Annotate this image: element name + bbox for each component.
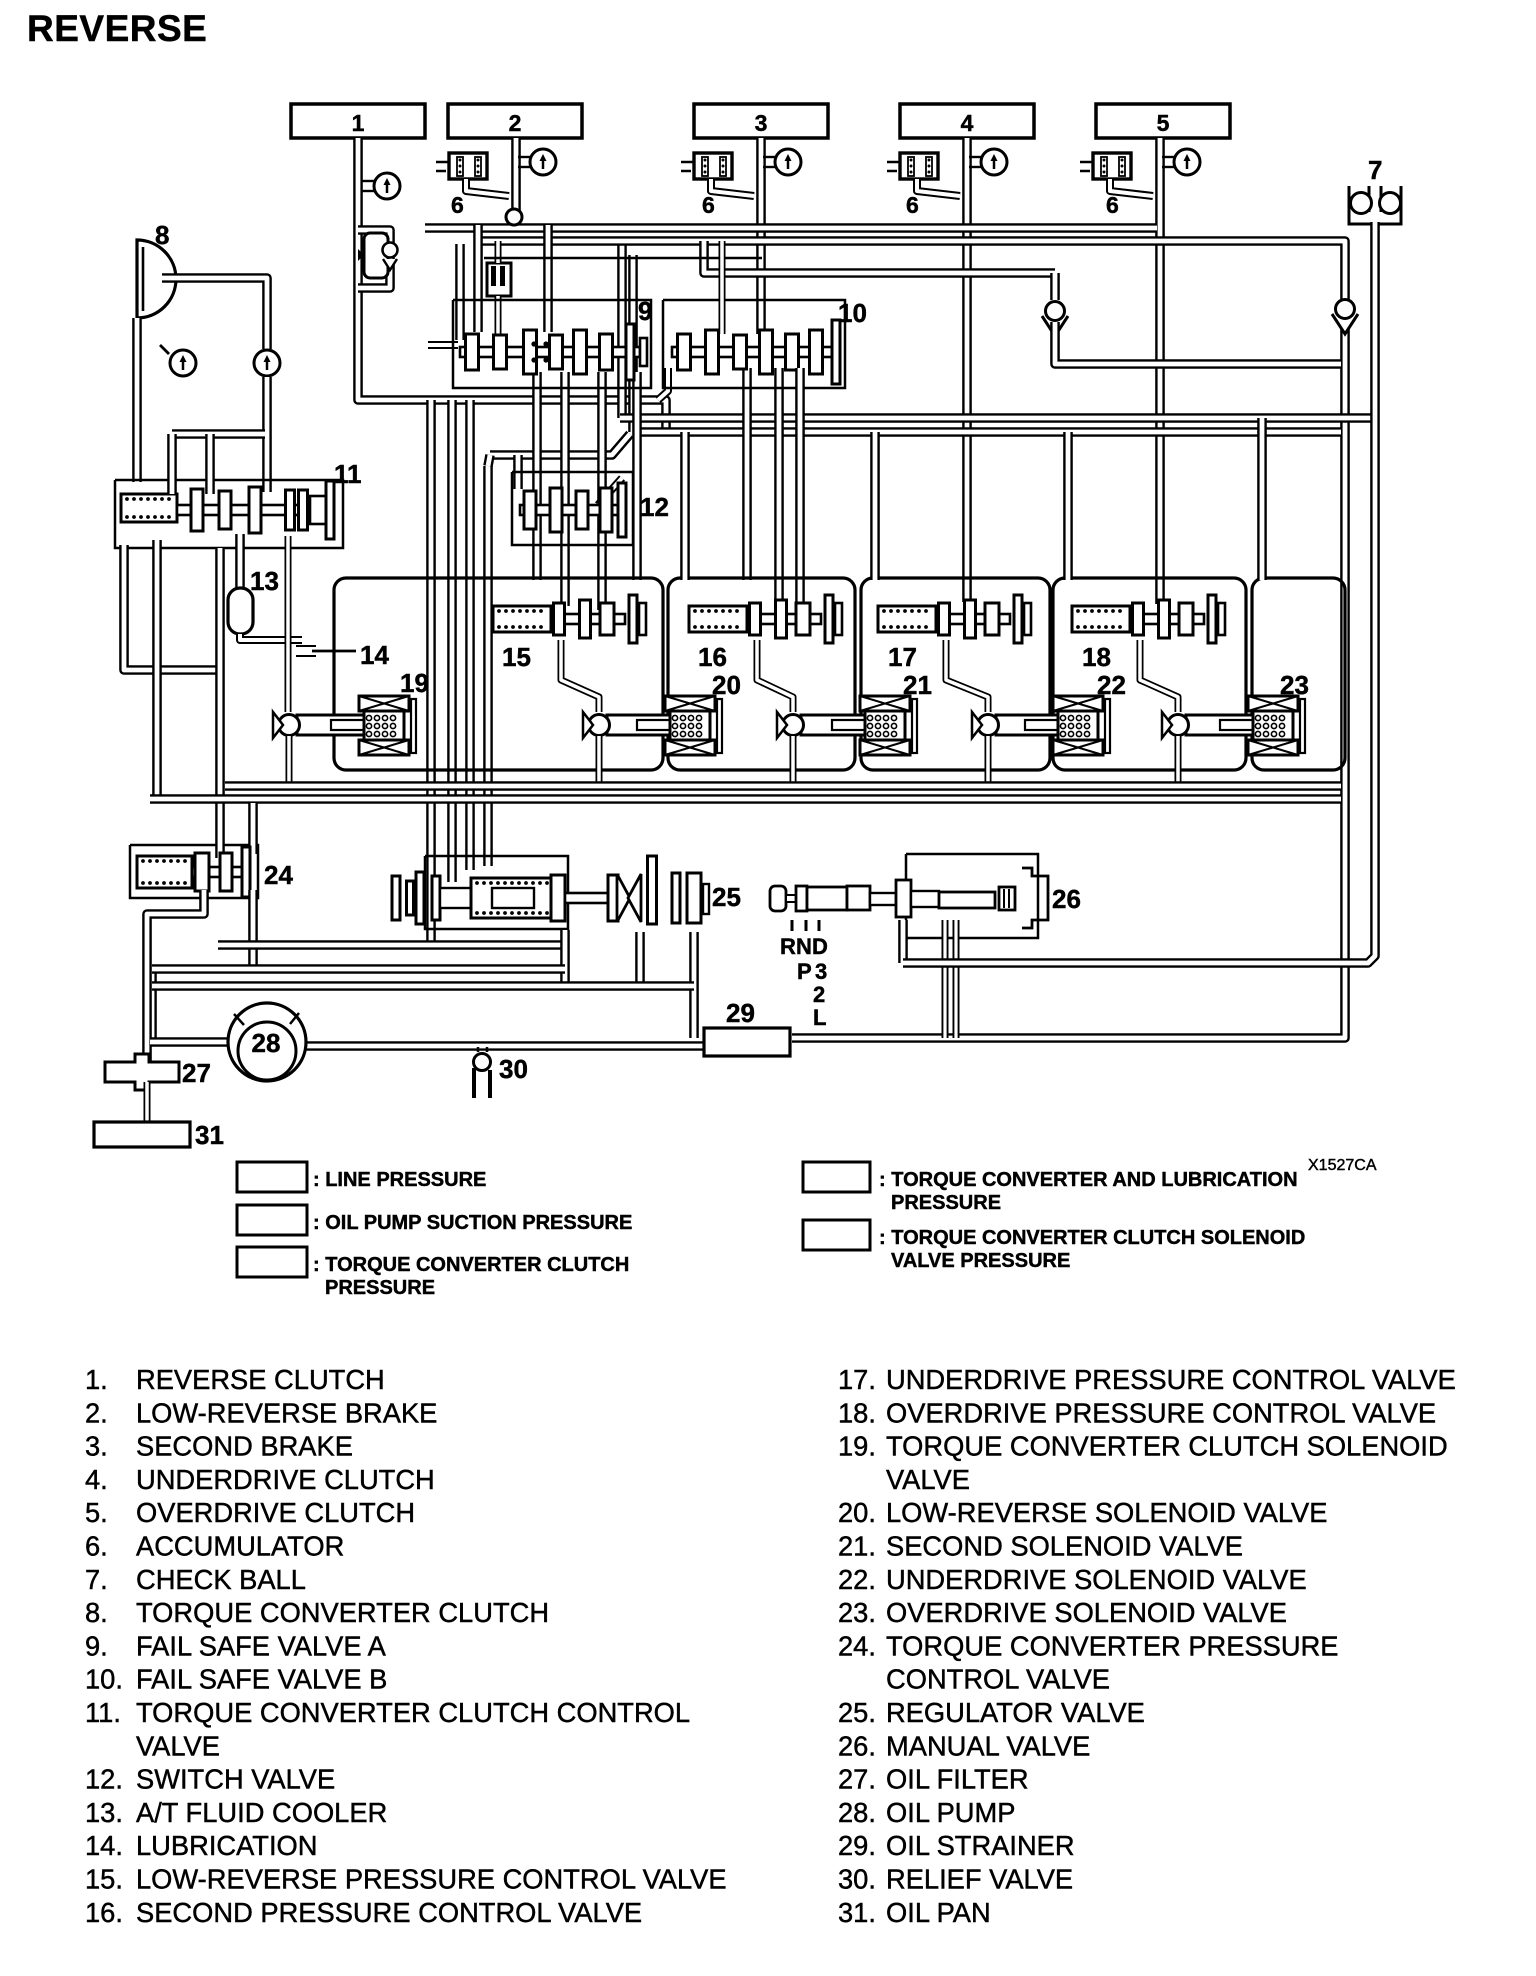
svg-text:2: 2 (813, 982, 825, 1007)
svg-text:4.: 4. (85, 1464, 108, 1495)
svg-text:LOW-REVERSE BRAKE: LOW-REVERSE BRAKE (136, 1397, 437, 1428)
svg-text:ACCUMULATOR: ACCUMULATOR (136, 1531, 344, 1562)
svg-text:X1527CA: X1527CA (1308, 1157, 1377, 1174)
svg-text:5: 5 (1157, 110, 1170, 136)
svg-text:FAIL SAFE VALVE B: FAIL SAFE VALVE B (136, 1664, 387, 1695)
svg-text:: LINE PRESSURE: : LINE PRESSURE (313, 1169, 486, 1191)
svg-text:VALVE PRESSURE: VALVE PRESSURE (891, 1250, 1070, 1272)
svg-text:SECOND SOLENOID VALVE: SECOND SOLENOID VALVE (886, 1531, 1243, 1562)
svg-text:19: 19 (400, 668, 429, 698)
svg-text:OIL PUMP: OIL PUMP (886, 1797, 1015, 1828)
svg-text:3: 3 (755, 110, 768, 136)
svg-text:TORQUE CONVERTER CLUTCH CONTRO: TORQUE CONVERTER CLUTCH CONTROL (136, 1697, 690, 1728)
svg-text:L: L (813, 1005, 826, 1030)
svg-text:TORQUE CONVERTER CLUTCH SOLENO: TORQUE CONVERTER CLUTCH SOLENOID (886, 1431, 1448, 1462)
svg-text:17.: 17. (838, 1364, 876, 1395)
svg-text:7.: 7. (85, 1564, 108, 1595)
svg-text:4: 4 (961, 110, 974, 136)
svg-text:: TORQUE CONVERTER CLUTCH SOLE: : TORQUE CONVERTER CLUTCH SOLENOID (879, 1227, 1305, 1249)
svg-text:10: 10 (838, 298, 867, 328)
svg-text:5.: 5. (85, 1497, 108, 1528)
svg-text:25: 25 (712, 882, 741, 912)
svg-text:R: R (780, 934, 796, 959)
svg-text:27.: 27. (838, 1764, 876, 1795)
svg-text:P: P (797, 959, 812, 984)
svg-text:7: 7 (1368, 155, 1382, 185)
svg-text:24: 24 (264, 860, 293, 890)
svg-text:FAIL SAFE VALVE A: FAIL SAFE VALVE A (136, 1630, 387, 1661)
svg-text:10.: 10. (85, 1664, 123, 1695)
svg-text:27: 27 (182, 1058, 211, 1088)
svg-text:OIL STRAINER: OIL STRAINER (886, 1830, 1075, 1861)
svg-text:VALVE: VALVE (886, 1464, 970, 1495)
svg-text:8.: 8. (85, 1597, 108, 1628)
svg-text:RELIEF VALVE: RELIEF VALVE (886, 1864, 1073, 1895)
svg-text:: OIL PUMP SUCTION PRESSURE: : OIL PUMP SUCTION PRESSURE (313, 1212, 632, 1234)
svg-text:LUBRICATION: LUBRICATION (136, 1830, 318, 1861)
svg-text:31.: 31. (838, 1897, 876, 1928)
svg-text:PRESSURE: PRESSURE (325, 1277, 435, 1299)
svg-text:REGULATOR VALVE: REGULATOR VALVE (886, 1697, 1145, 1728)
svg-text:OVERDRIVE PRESSURE CONTROL VAL: OVERDRIVE PRESSURE CONTROL VALVE (886, 1397, 1436, 1428)
svg-text:UNDERDRIVE PRESSURE CONTROL VA: UNDERDRIVE PRESSURE CONTROL VALVE (886, 1364, 1456, 1395)
svg-text:13: 13 (250, 566, 279, 596)
svg-text:17: 17 (888, 642, 917, 672)
svg-text:6: 6 (451, 192, 464, 218)
svg-text:OIL PAN: OIL PAN (886, 1897, 991, 1928)
svg-text:11: 11 (334, 459, 362, 489)
svg-text:MANUAL VALVE: MANUAL VALVE (886, 1730, 1090, 1761)
svg-text:1: 1 (352, 110, 365, 136)
svg-text:6: 6 (1106, 192, 1119, 218)
svg-text:CHECK BALL: CHECK BALL (136, 1564, 306, 1595)
svg-text:3.: 3. (85, 1431, 108, 1462)
svg-text:31: 31 (195, 1120, 224, 1150)
svg-text:23.: 23. (838, 1597, 876, 1628)
svg-text:REVERSE: REVERSE (27, 8, 207, 49)
svg-text:SECOND BRAKE: SECOND BRAKE (136, 1431, 353, 1462)
svg-text:12: 12 (640, 492, 669, 522)
svg-text:: TORQUE CONVERTER AND LUBRICA: : TORQUE CONVERTER AND LUBRICATION (879, 1169, 1298, 1191)
svg-text:9.: 9. (85, 1630, 108, 1661)
svg-text:6.: 6. (85, 1531, 108, 1562)
svg-text:9: 9 (638, 296, 652, 326)
svg-text:12.: 12. (85, 1764, 123, 1795)
svg-text:6: 6 (906, 192, 919, 218)
svg-text:A/T FLUID COOLER: A/T FLUID COOLER (136, 1797, 387, 1828)
svg-text:TORQUE CONVERTER PRESSURE: TORQUE CONVERTER PRESSURE (886, 1630, 1339, 1661)
svg-text:26: 26 (1052, 884, 1081, 914)
svg-text:TORQUE CONVERTER CLUTCH: TORQUE CONVERTER CLUTCH (136, 1597, 549, 1628)
svg-text:16.: 16. (85, 1897, 123, 1928)
svg-text:28.: 28. (838, 1797, 876, 1828)
svg-text:UNDERDRIVE CLUTCH: UNDERDRIVE CLUTCH (136, 1464, 435, 1495)
svg-text:30: 30 (499, 1054, 528, 1084)
svg-text:18: 18 (1082, 642, 1111, 672)
svg-text:16: 16 (698, 642, 727, 672)
svg-text:SWITCH VALVE: SWITCH VALVE (136, 1764, 335, 1795)
svg-text:18.: 18. (838, 1397, 876, 1428)
svg-text:OIL FILTER: OIL FILTER (886, 1764, 1029, 1795)
svg-text:VALVE: VALVE (136, 1730, 220, 1761)
svg-text:29: 29 (726, 998, 755, 1028)
svg-text:14.: 14. (85, 1830, 123, 1861)
svg-text:UNDERDRIVE SOLENOID VALVE: UNDERDRIVE SOLENOID VALVE (886, 1564, 1307, 1595)
svg-text:2.: 2. (85, 1397, 108, 1428)
svg-text:REVERSE CLUTCH: REVERSE CLUTCH (136, 1364, 385, 1395)
svg-text:29.: 29. (838, 1830, 876, 1861)
svg-text:11.: 11. (85, 1697, 121, 1728)
svg-text:24.: 24. (838, 1630, 876, 1661)
svg-text:PRESSURE: PRESSURE (891, 1192, 1001, 1214)
svg-text:25.: 25. (838, 1697, 876, 1728)
svg-text:13.: 13. (85, 1797, 123, 1828)
svg-text:28: 28 (252, 1028, 281, 1058)
svg-text:CONTROL VALVE: CONTROL VALVE (886, 1664, 1110, 1695)
svg-text:1.: 1. (85, 1364, 108, 1395)
svg-text:6: 6 (702, 192, 715, 218)
svg-text:15.: 15. (85, 1864, 123, 1895)
svg-text:: TORQUE CONVERTER CLUTCH: : TORQUE CONVERTER CLUTCH (313, 1254, 629, 1276)
svg-text:3: 3 (815, 959, 827, 984)
svg-text:26.: 26. (838, 1730, 876, 1761)
svg-text:2: 2 (509, 110, 522, 136)
svg-text:LOW-REVERSE SOLENOID VALVE: LOW-REVERSE SOLENOID VALVE (886, 1497, 1327, 1528)
svg-text:22.: 22. (838, 1564, 876, 1595)
svg-text:14: 14 (360, 640, 389, 670)
svg-text:LOW-REVERSE PRESSURE CONTROL V: LOW-REVERSE PRESSURE CONTROL VALVE (136, 1864, 727, 1895)
svg-text:15: 15 (502, 642, 531, 672)
svg-text:21.: 21. (838, 1531, 876, 1562)
svg-text:SECOND PRESSURE CONTROL VALVE: SECOND PRESSURE CONTROL VALVE (136, 1897, 642, 1928)
svg-text:19.: 19. (838, 1431, 876, 1462)
svg-text:OVERDRIVE SOLENOID VALVE: OVERDRIVE SOLENOID VALVE (886, 1597, 1287, 1628)
svg-text:OVERDRIVE CLUTCH: OVERDRIVE CLUTCH (136, 1497, 415, 1528)
svg-text:N: N (796, 934, 812, 959)
svg-text:D: D (812, 934, 828, 959)
svg-text:20.: 20. (838, 1497, 876, 1528)
svg-text:30.: 30. (838, 1864, 876, 1895)
